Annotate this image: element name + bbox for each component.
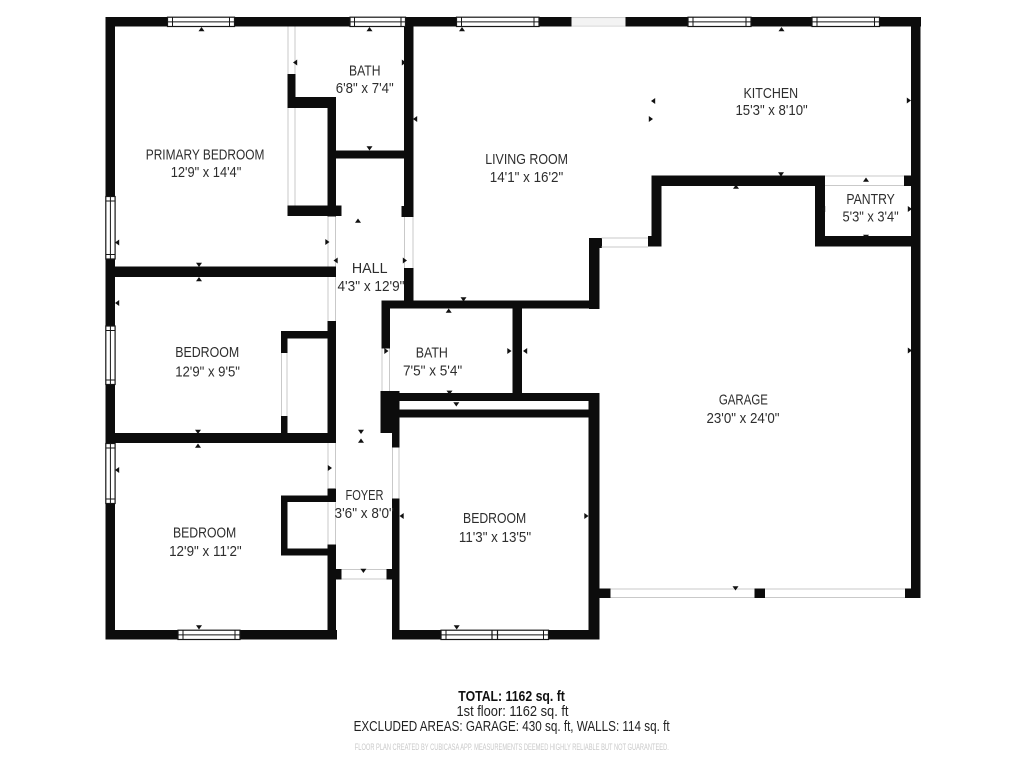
svg-text:5'3" x 3'4": 5'3" x 3'4": [843, 209, 899, 226]
svg-text:3'6" x 8'0": 3'6" x 8'0": [335, 505, 394, 522]
svg-text:7'5" x 5'4": 7'5" x 5'4": [403, 362, 462, 379]
svg-text:4'3" x 12'9": 4'3" x 12'9": [338, 278, 405, 295]
svg-text:EXCLUDED AREAS: GARAGE: 430 sq: EXCLUDED AREAS: GARAGE: 430 sq. ft, WALL…: [354, 718, 671, 735]
svg-text:12'9" x 11'2": 12'9" x 11'2": [169, 543, 242, 560]
svg-text:KITCHEN: KITCHEN: [744, 85, 799, 102]
svg-text:FLOOR PLAN CREATED BY CUBICASA: FLOOR PLAN CREATED BY CUBICASA APP. MEAS…: [355, 742, 669, 752]
svg-text:BEDROOM: BEDROOM: [175, 344, 239, 361]
svg-text:HALL: HALL: [352, 260, 388, 277]
svg-text:BEDROOM: BEDROOM: [173, 525, 236, 542]
svg-text:GARAGE: GARAGE: [719, 392, 768, 409]
svg-text:12'9" x 9'5": 12'9" x 9'5": [175, 364, 240, 381]
svg-text:6'8" x 7'4": 6'8" x 7'4": [336, 80, 394, 97]
svg-text:23'0" x 24'0": 23'0" x 24'0": [707, 410, 780, 427]
svg-text:11'3" x 13'5": 11'3" x 13'5": [459, 529, 531, 546]
svg-text:12'9" x 14'4": 12'9" x 14'4": [171, 164, 242, 181]
svg-text:PANTRY: PANTRY: [846, 191, 895, 208]
svg-text:BEDROOM: BEDROOM: [463, 510, 526, 527]
svg-text:15'3" x 8'10": 15'3" x 8'10": [735, 102, 807, 119]
svg-text:FOYER: FOYER: [345, 487, 383, 504]
svg-text:LIVING ROOM: LIVING ROOM: [485, 151, 568, 168]
svg-text:PRIMARY BEDROOM: PRIMARY BEDROOM: [146, 147, 265, 164]
svg-text:BATH: BATH: [416, 345, 448, 362]
svg-text:BATH: BATH: [349, 63, 381, 80]
svg-text:14'1" x 16'2": 14'1" x 16'2": [490, 169, 564, 186]
